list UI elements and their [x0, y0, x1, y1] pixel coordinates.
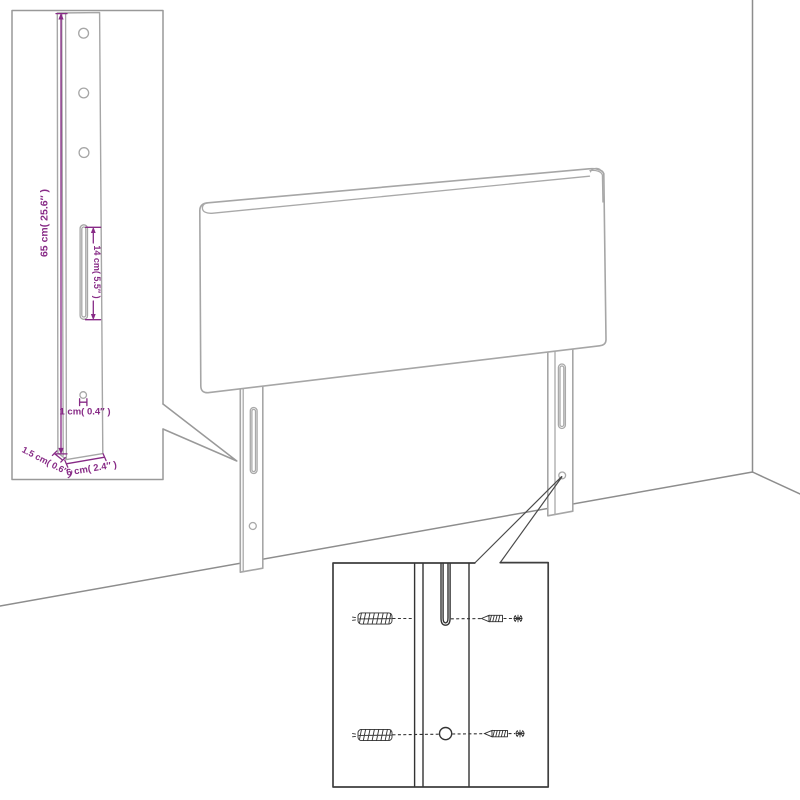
left-mounting-leg — [240, 384, 262, 573]
diagram-page: 65 cm( 25.6″ ) 14 cm( 5.5″ ) 1 cm( 0.4″ … — [0, 0, 800, 800]
dimension-label-14cm: 14 cm( 5.5″ ) — [92, 245, 102, 298]
headboard — [200, 168, 606, 392]
right-mounting-leg — [548, 344, 573, 516]
inset-callout-pointer — [163, 404, 237, 461]
hardware-detail-inset — [333, 477, 562, 787]
headboard-panel — [200, 169, 606, 393]
floor-line-right — [753, 472, 800, 494]
dimension-label-65cm: 65 cm( 25.6″ ) — [39, 189, 51, 257]
diagram-canvas: 65 cm( 25.6″ ) 14 cm( 5.5″ ) 1 cm( 0.4″ … — [0, 0, 800, 800]
dimension-label-1cm: 1 cm( 0.4″ ) — [59, 407, 110, 418]
